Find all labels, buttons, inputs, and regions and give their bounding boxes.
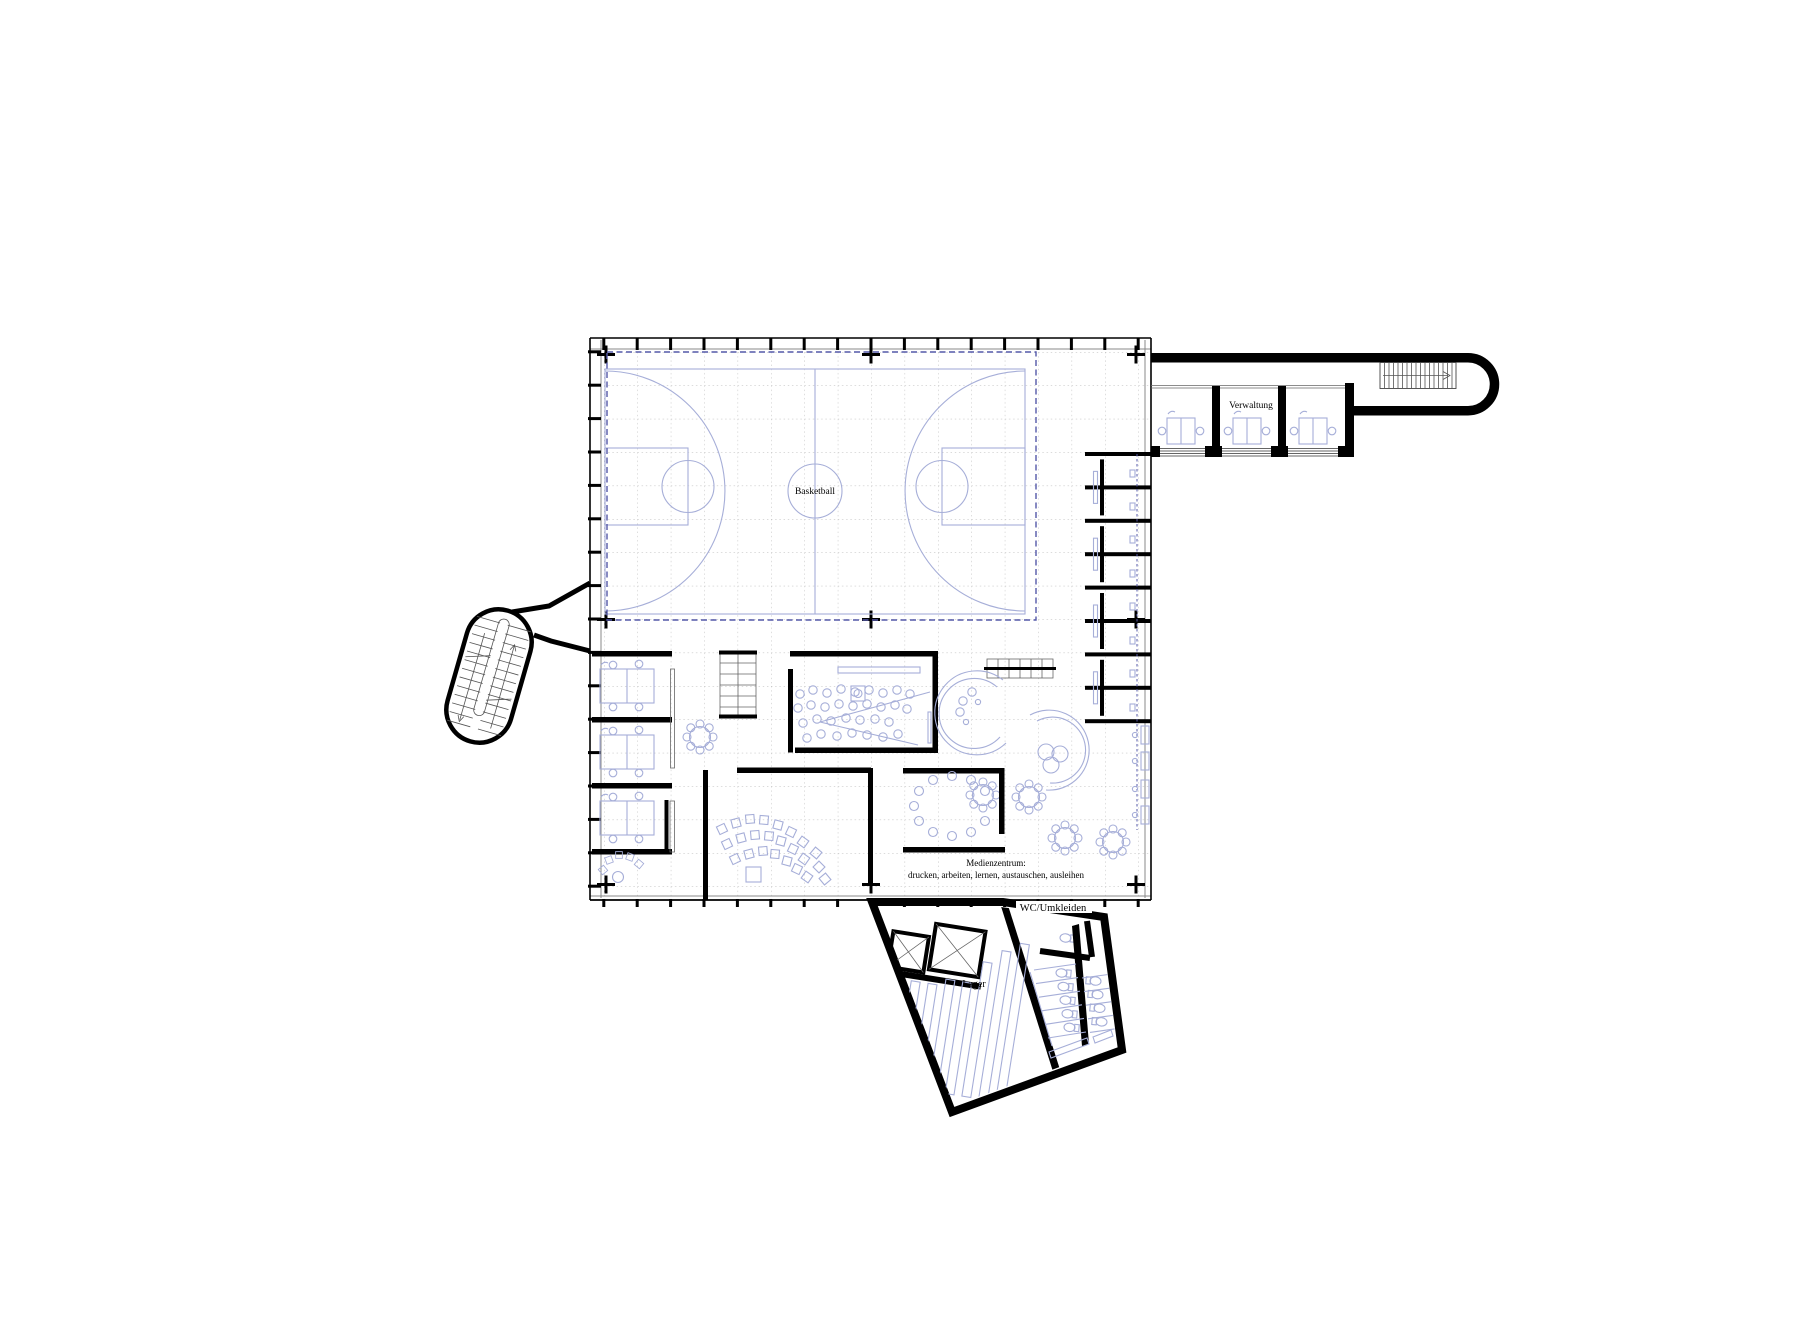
- window-sill: [1222, 449, 1271, 457]
- changing-benches: [1030, 972, 1113, 1058]
- admin-stair: [1380, 363, 1456, 389]
- media-center-label-line1: Medienzentrum:: [966, 858, 1025, 868]
- media-center-label-line2: drucken, arbeiten, lernen, austauschen, …: [908, 870, 1084, 880]
- west-stair-pod: [439, 583, 590, 750]
- admin-wing: Verwaltung: [1151, 358, 1495, 457]
- admin-desk: [1224, 411, 1270, 444]
- admin-label: Verwaltung: [1229, 401, 1273, 411]
- window-sill: [1160, 449, 1205, 457]
- annex-building: WC/Umkleiden Lager: [868, 899, 1122, 1112]
- wc-label: WC/Umkleiden: [1020, 903, 1087, 914]
- wc-small-room: [1040, 921, 1092, 958]
- floor-plan-svg: Basketball: [0, 0, 1800, 1320]
- admin-desk: [1290, 411, 1336, 444]
- court-label: Basketball: [795, 487, 835, 497]
- lager-label: Lager: [962, 979, 986, 990]
- main-hall: Basketball: [588, 338, 1151, 907]
- mullion-ticks-top: [589, 338, 1150, 350]
- window-sill: [1288, 449, 1338, 457]
- admin-desk: [1158, 411, 1204, 444]
- floor-plan: Basketball: [0, 0, 1800, 1320]
